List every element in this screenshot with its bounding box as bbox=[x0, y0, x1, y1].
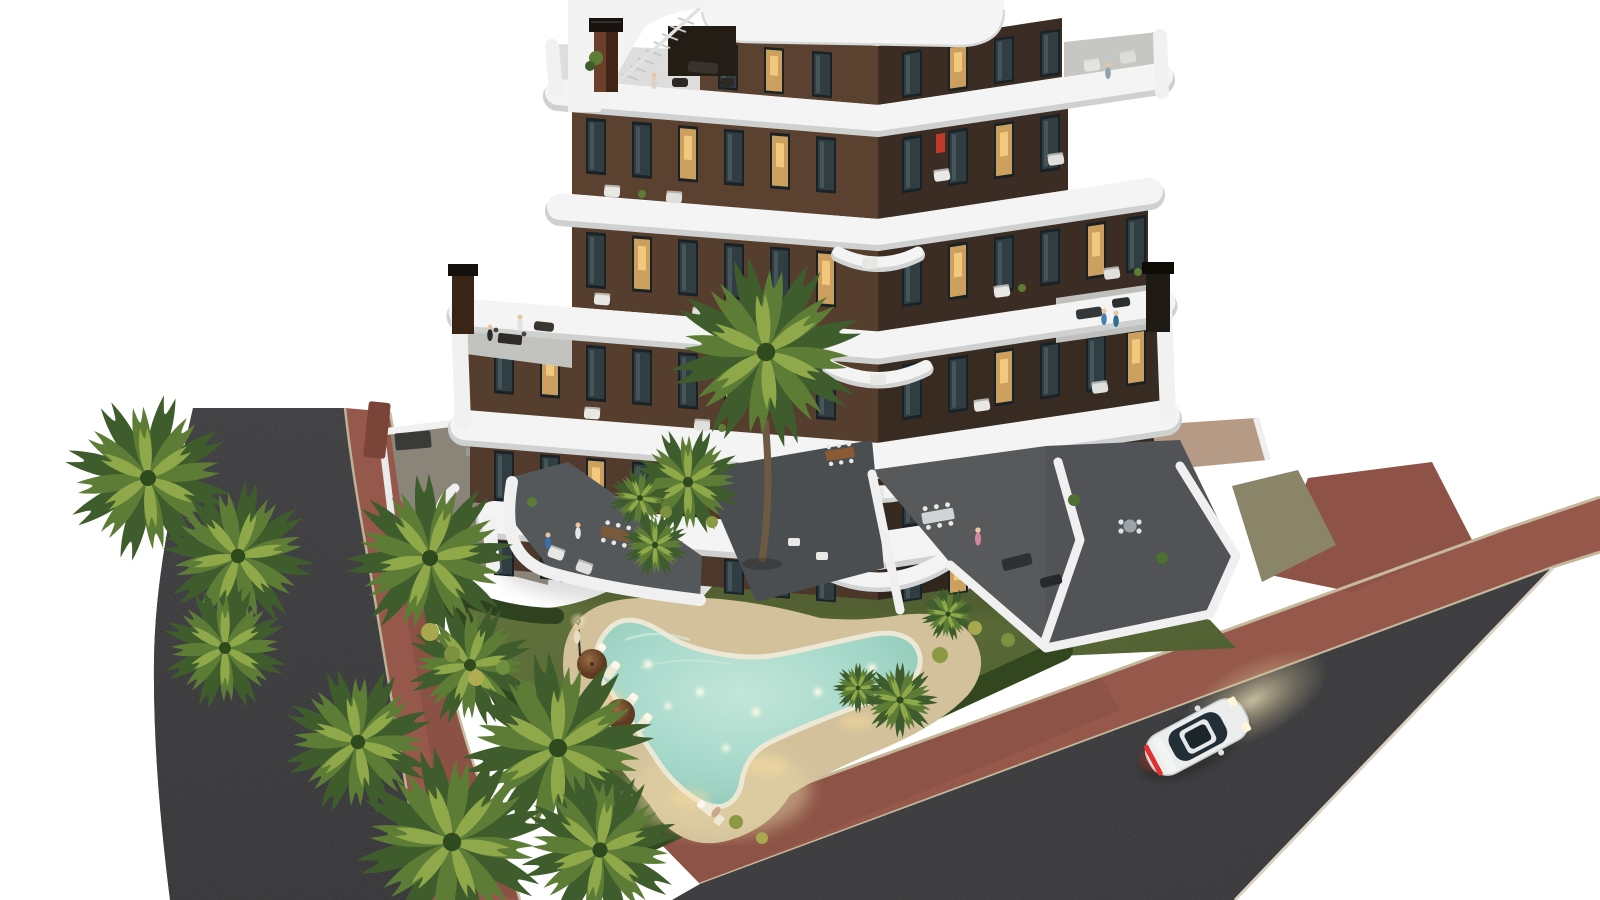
planter-box bbox=[788, 538, 800, 546]
balcony-planter bbox=[1134, 268, 1142, 276]
person-ground bbox=[545, 533, 551, 550]
architectural-render bbox=[0, 0, 1600, 900]
person-terrace bbox=[487, 325, 493, 342]
apartment-building bbox=[448, 0, 1268, 648]
planter-box bbox=[816, 552, 828, 560]
red-window-item bbox=[936, 133, 945, 153]
person-balcony bbox=[1105, 63, 1111, 80]
balcony-planter bbox=[718, 424, 726, 432]
louver-panel bbox=[394, 430, 431, 450]
roof-slab bbox=[700, 0, 1004, 46]
person-terrace bbox=[1101, 309, 1107, 326]
terrace-plant bbox=[1068, 494, 1080, 506]
scene-canvas bbox=[0, 0, 1600, 900]
balcony-planter bbox=[1018, 284, 1026, 292]
palm-shadow bbox=[742, 558, 782, 570]
terrace-plant bbox=[1156, 552, 1168, 564]
person-roof bbox=[651, 73, 657, 90]
person-terrace bbox=[1113, 311, 1119, 328]
chimney-left bbox=[448, 264, 478, 334]
roof-plant bbox=[585, 61, 595, 71]
person-pink bbox=[975, 527, 981, 545]
chimney-right bbox=[1142, 262, 1174, 332]
person-terrace bbox=[517, 315, 523, 332]
person-poolside bbox=[574, 625, 580, 644]
person-ground bbox=[575, 523, 581, 540]
balcony-planter bbox=[638, 190, 646, 198]
terrace-plant bbox=[527, 497, 537, 507]
